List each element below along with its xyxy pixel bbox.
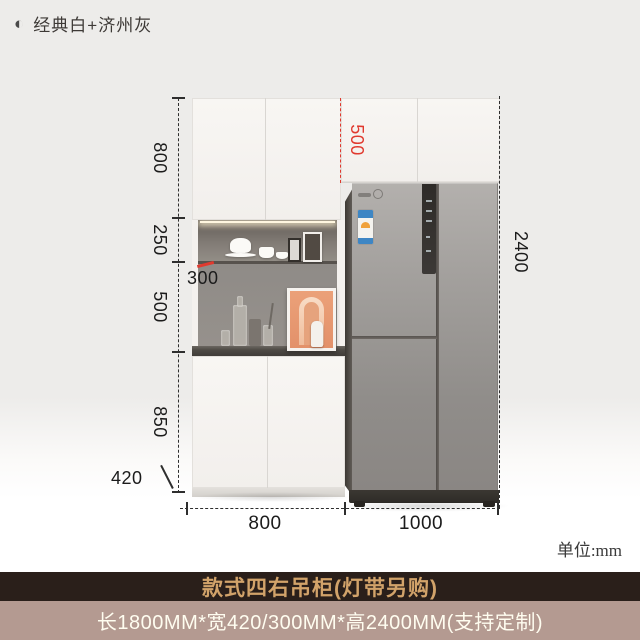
half-circle-icon: ◐ bbox=[14, 15, 24, 32]
figurine bbox=[311, 321, 323, 347]
dimension-tick bbox=[172, 217, 185, 219]
dim-base-depth: 420 bbox=[111, 468, 143, 489]
photo-frame-small bbox=[288, 238, 301, 262]
dimension-tick bbox=[172, 351, 185, 353]
decanter bbox=[233, 305, 247, 346]
leader-line bbox=[160, 465, 173, 489]
decanter-neck bbox=[237, 296, 243, 307]
saucer bbox=[225, 253, 256, 257]
cabinet-door-seam bbox=[417, 98, 418, 182]
photo-frame-large bbox=[303, 232, 322, 262]
wall-cabinet-left bbox=[192, 98, 341, 220]
bowl bbox=[276, 252, 288, 259]
dim-shelf-depth: 300 bbox=[187, 268, 219, 289]
cabinet-door-seam bbox=[267, 356, 268, 488]
brand-logo bbox=[358, 193, 371, 197]
dim-cabinet-width: 800 bbox=[186, 513, 344, 535]
dim-fridge-bay-width: 1000 bbox=[344, 513, 498, 535]
cabinet-side-panel bbox=[337, 220, 345, 356]
fridge-door-seam-horizontal bbox=[352, 336, 437, 339]
dim-top-cabinet-height: 800 bbox=[150, 136, 170, 180]
refrigerator bbox=[352, 183, 498, 491]
base-cabinet bbox=[192, 356, 345, 488]
fridge-shadow bbox=[340, 500, 510, 512]
energy-label-footer bbox=[358, 238, 373, 244]
lattice-bottle bbox=[249, 319, 261, 346]
brand-logo-icon bbox=[373, 189, 383, 199]
dimension-line-right bbox=[499, 96, 500, 508]
led-light-strip bbox=[200, 221, 335, 223]
dim-base-height: 850 bbox=[150, 400, 170, 444]
dim-total-height: 2400 bbox=[511, 230, 531, 274]
dim-over-fridge-height: 500 bbox=[347, 118, 367, 162]
energy-label bbox=[358, 210, 373, 244]
dimension-line-bottom bbox=[180, 508, 500, 509]
spec-text: 长1800MM*宽420/300MM*高2400MM(支持定制) bbox=[97, 606, 543, 635]
photo bbox=[290, 240, 299, 260]
display-segment bbox=[426, 210, 432, 212]
energy-label-header bbox=[358, 210, 373, 218]
dimension-tick bbox=[172, 261, 185, 263]
photo bbox=[305, 234, 320, 260]
dim-niche-height: 250 bbox=[150, 218, 170, 262]
fridge-control-panel bbox=[422, 184, 436, 274]
dim-backsplash-height: 500 bbox=[150, 285, 170, 329]
teapot bbox=[230, 238, 251, 253]
style-title-text: 款式四右吊柜(灯带另购) bbox=[202, 572, 438, 602]
dimension-line-left bbox=[178, 98, 179, 493]
dimension-tick bbox=[172, 97, 185, 99]
cabinet-shadow bbox=[192, 492, 352, 502]
dimension-line-red bbox=[340, 98, 341, 183]
display-segment bbox=[426, 200, 432, 202]
display-segment bbox=[426, 250, 431, 252]
dimension-tick bbox=[172, 491, 185, 493]
energy-label-arc bbox=[361, 222, 370, 228]
display-segment bbox=[426, 220, 432, 222]
product-image: ◐ 经典白+济州灰 bbox=[0, 0, 640, 640]
display-segment bbox=[426, 236, 430, 238]
unit-note: 单位:mm bbox=[530, 536, 622, 561]
cup bbox=[259, 247, 274, 258]
finish-label-text: 经典白+济州灰 bbox=[33, 11, 152, 36]
cabinet-door-seam bbox=[265, 98, 266, 220]
finish-label: ◐ 经典白+济州灰 bbox=[14, 11, 152, 36]
style-title-banner: 款式四右吊柜(灯带另购) bbox=[0, 572, 640, 601]
spec-banner: 长1800MM*宽420/300MM*高2400MM(支持定制) bbox=[0, 601, 640, 640]
glass-tumbler bbox=[221, 330, 230, 346]
